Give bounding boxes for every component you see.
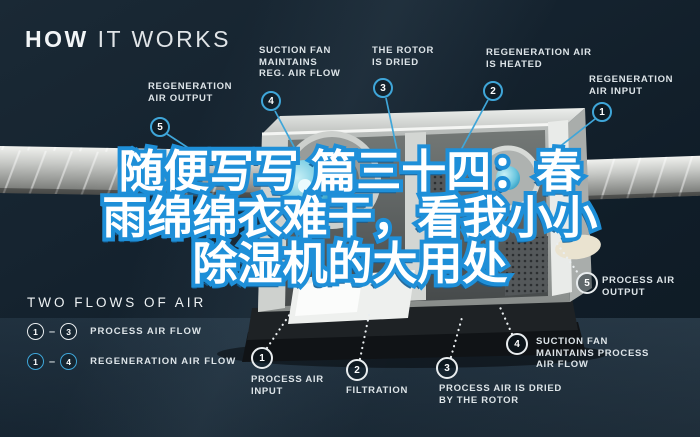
- callout-regeneration-air-input: REGENERATION AIR INPUT: [589, 74, 673, 97]
- legend: TWO FLOWS OF AIR 1 – 3 PROCESS AIR FLOW …: [27, 295, 236, 370]
- legend-title: TWO FLOWS OF AIR: [27, 295, 236, 310]
- legend-row-process: 1 – 3 PROCESS AIR FLOW: [27, 323, 236, 340]
- legend-circle-from: 1: [27, 323, 44, 340]
- legend-circle-to: 3: [60, 323, 77, 340]
- callout-rotor-dried: THE ROTOR IS DRIED: [372, 45, 434, 68]
- badge-number: 2: [354, 365, 360, 376]
- page-title: HOW IT WORKS: [25, 26, 231, 53]
- badge-regeneration-3: 3: [373, 78, 393, 98]
- right-duct: [572, 154, 700, 203]
- badge-process-1: 1: [251, 347, 273, 369]
- legend-circle-from: 1: [27, 353, 44, 370]
- callout-suction-fan-reg: SUCTION FAN MAINTAINS REG. AIR FLOW: [259, 45, 341, 80]
- legend-label-regeneration: REGENERATION AIR FLOW: [90, 356, 236, 367]
- page-title-strong: HOW: [25, 26, 89, 52]
- badge-number: 3: [380, 83, 386, 94]
- callout-process-air-output: PROCESS AIR OUTPUT: [602, 275, 675, 298]
- callout-filtration: FILTRATION: [346, 385, 408, 397]
- infographic-canvas: HOW IT WORKS REGENERATION AIR OUTPUT 5 S…: [0, 0, 700, 437]
- badge-process-2: 2: [346, 359, 368, 381]
- badge-regeneration-1: 1: [592, 102, 612, 122]
- callout-process-air-input: PROCESS AIR INPUT: [251, 374, 324, 397]
- legend-label-process: PROCESS AIR FLOW: [90, 326, 202, 337]
- badge-number: 1: [259, 353, 265, 364]
- badge-process-4: 4: [506, 333, 528, 355]
- callout-suction-fan-process: SUCTION FAN MAINTAINS PROCESS AIR FLOW: [536, 336, 649, 371]
- badge-number: 3: [444, 363, 450, 374]
- badge-regeneration-2: 2: [483, 81, 503, 101]
- badge-regeneration-5: 5: [150, 117, 170, 137]
- callout-regeneration-air-output: REGENERATION AIR OUTPUT: [148, 81, 232, 104]
- callout-process-air-dried: PROCESS AIR IS DRIED BY THE ROTOR: [439, 383, 562, 406]
- badge-number: 5: [157, 122, 163, 133]
- badge-number: 2: [490, 86, 496, 97]
- badge-number: 5: [584, 278, 590, 289]
- legend-dash: –: [49, 356, 55, 368]
- legend-circle-to: 4: [60, 353, 77, 370]
- badge-number: 1: [599, 107, 605, 118]
- dehumidifier-machine: [217, 108, 607, 368]
- badge-regeneration-4: 4: [261, 91, 281, 111]
- legend-row-regeneration: 1 – 4 REGENERATION AIR FLOW: [27, 353, 236, 370]
- page-title-rest: IT WORKS: [89, 26, 231, 52]
- left-duct: [0, 146, 266, 198]
- badge-process-3: 3: [436, 357, 458, 379]
- badge-number: 4: [514, 339, 520, 350]
- legend-dash: –: [49, 326, 55, 338]
- callout-regeneration-heated: REGENERATION AIR IS HEATED: [486, 47, 592, 70]
- badge-number: 4: [268, 96, 274, 107]
- badge-process-5: 5: [576, 272, 598, 294]
